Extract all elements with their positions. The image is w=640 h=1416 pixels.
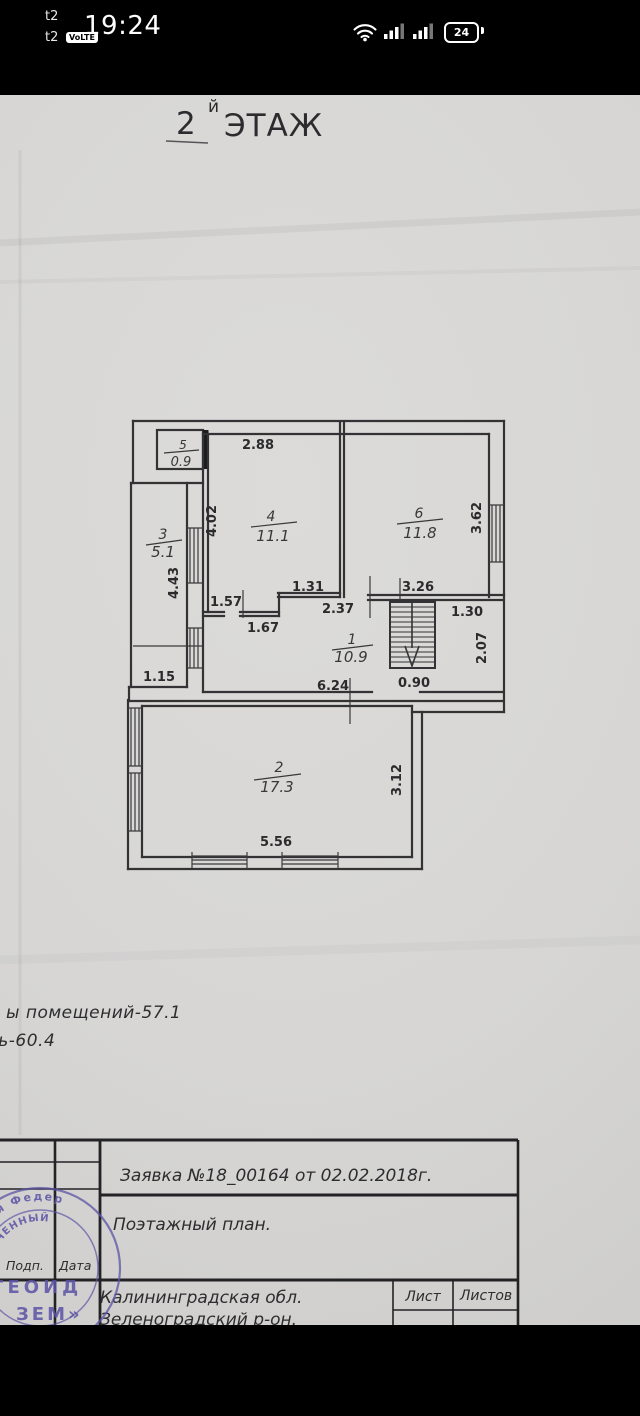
status-bar: t2 t2 VoLTE 19:24 24 [0,0,640,95]
dim-room4-height: 4.02 [205,505,220,537]
dim-hall-seg1: 1.57 [210,595,242,610]
svg-text:ЧЕННЫЙ: ЧЕННЫЙ [0,1211,50,1245]
dim-hall-seg2: 1.31 [292,580,324,595]
svg-text:17.3: 17.3 [260,778,293,796]
carrier-label-top: t2 [45,9,58,24]
stamp-arc-inner-text: ЧЕННЫЙ [0,1211,50,1245]
room-label-5: 5 0.9 [164,438,199,470]
dim-room2-width: 5.56 [260,835,292,850]
dim-landing-height: 2.07 [475,632,490,664]
summary-line-1: ы помещений-57.1 [6,1003,181,1023]
svg-text:3: 3 [159,527,168,543]
date-label: Дата [58,1258,91,1273]
battery-nub [481,27,484,34]
phone-screen: t2 t2 VoLTE 19:24 24 [0,0,640,1416]
battery-percent: 24 [454,26,469,39]
sheets-label: Листов [459,1288,512,1304]
stairs [390,602,435,668]
sign-label: Подп. [6,1258,44,1273]
floor-title-number: 2 [176,106,197,142]
dim-room6-bottom: 3.26 [402,580,434,595]
wifi-icon [352,22,378,42]
document-type: Поэтажный план. [113,1215,271,1235]
room-label-6: 6 11.8 [397,506,443,542]
svg-text:0.9: 0.9 [171,455,192,470]
battery-icon: 24 [444,22,479,43]
svg-text:4: 4 [267,509,276,525]
dim-stair-right: 1.30 [451,605,483,620]
floor-title: 2 й ЭТАЖ [166,97,323,144]
paper-creases [0,150,640,1135]
district-label: Зеленоградский р-он. [100,1310,297,1325]
dim-room6-height: 3.62 [470,502,485,534]
area-summary: ы помещений-57.1 дь-60.4 [0,1003,181,1051]
floor-title-word: ЭТАЖ [224,108,323,144]
dim-hall-width: 6.24 [317,679,349,694]
svg-text:1: 1 [348,632,357,648]
dim-room4-width: 2.88 [242,438,274,453]
dim-stair-width: 0.90 [398,676,430,691]
summary-line-2: дь-60.4 [0,1031,55,1051]
svg-text:2: 2 [275,760,284,776]
status-time: 19:24 [84,11,161,41]
region-label: Калининградская обл. [100,1288,302,1308]
room-label-1: 1 10.9 [332,632,373,666]
plan-walls [128,421,504,869]
request-number: Заявка №18_00164 от 02.02.2018г. [120,1166,432,1186]
svg-text:10.9: 10.9 [334,648,367,666]
bottom-letterbox [0,1325,640,1416]
dim-room2-height: 3.12 [390,764,405,796]
svg-text:6: 6 [415,506,424,522]
signal-icon-sim2 [413,22,435,40]
svg-text:11.8: 11.8 [403,524,436,542]
signal-icon-sim1 [384,22,406,40]
sheet-label: Лист [404,1289,441,1305]
carrier-label-bottom: t2 [45,30,58,45]
title-block-text: Заявка №18_00164 от 02.02.2018г. Поэтажн… [6,1166,512,1325]
svg-text:5.1: 5.1 [151,543,175,561]
stair-arrow-down [405,646,419,666]
dim-hall-seg4: 1.67 [247,621,279,636]
svg-text:11.1: 11.1 [256,527,289,545]
dimension-labels: 2.88 4.02 3.62 4.43 1.57 1.31 3.26 2.37 … [143,438,490,850]
dim-room3-height: 4.43 [167,567,182,599]
room-label-3: 3 5.1 [146,527,182,561]
svg-text:5: 5 [179,438,187,452]
photo-floor-plan[interactable]: 2 й ЭТАЖ [0,95,640,1325]
dim-left-step: 1.15 [143,670,175,685]
floor-title-underline [166,141,208,143]
room-label-2: 2 17.3 [254,760,301,796]
floor-title-suffix: й [208,97,220,117]
room-label-4: 4 11.1 [251,509,297,545]
dim-hall-seg3: 2.37 [322,602,354,617]
stamp-name-line1: ГЕОИД [0,1277,82,1298]
stamp-name-line2: ЗЕМ» [16,1304,83,1325]
